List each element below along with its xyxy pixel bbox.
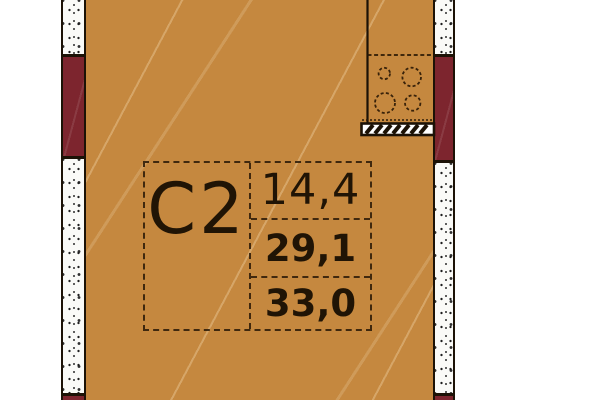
- area-row-living: 14,4: [251, 163, 370, 220]
- wall-segment-concrete: [63, 159, 84, 393]
- total-area-value: 33,0: [265, 285, 356, 322]
- area-table: C2 14,4 29,1 33,0: [143, 161, 372, 331]
- area-values-column: 14,4 29,1 33,0: [251, 163, 370, 329]
- wall-segment-red: [63, 396, 84, 400]
- stove-burners-icon: [375, 68, 421, 113]
- apartment-area-value: 29,1: [265, 230, 356, 267]
- vent-hatch-icon: [362, 124, 435, 136]
- unit-label: C2: [147, 163, 246, 244]
- wall-segment-concrete: [63, 0, 84, 54]
- wall-segment-concrete: [435, 163, 453, 393]
- area-row-apartment: 29,1: [251, 220, 370, 278]
- area-row-total: 33,0: [251, 278, 370, 329]
- wall-segment-red: [63, 57, 84, 156]
- wall-segment-red: [435, 396, 453, 400]
- kitchen-zone: [355, 0, 440, 145]
- floor-plan: C2 14,4 29,1 33,0: [0, 0, 600, 400]
- unit-label-cell: C2: [145, 163, 251, 329]
- living-area-value: 14,4: [261, 169, 361, 212]
- wall-left: [61, 0, 86, 400]
